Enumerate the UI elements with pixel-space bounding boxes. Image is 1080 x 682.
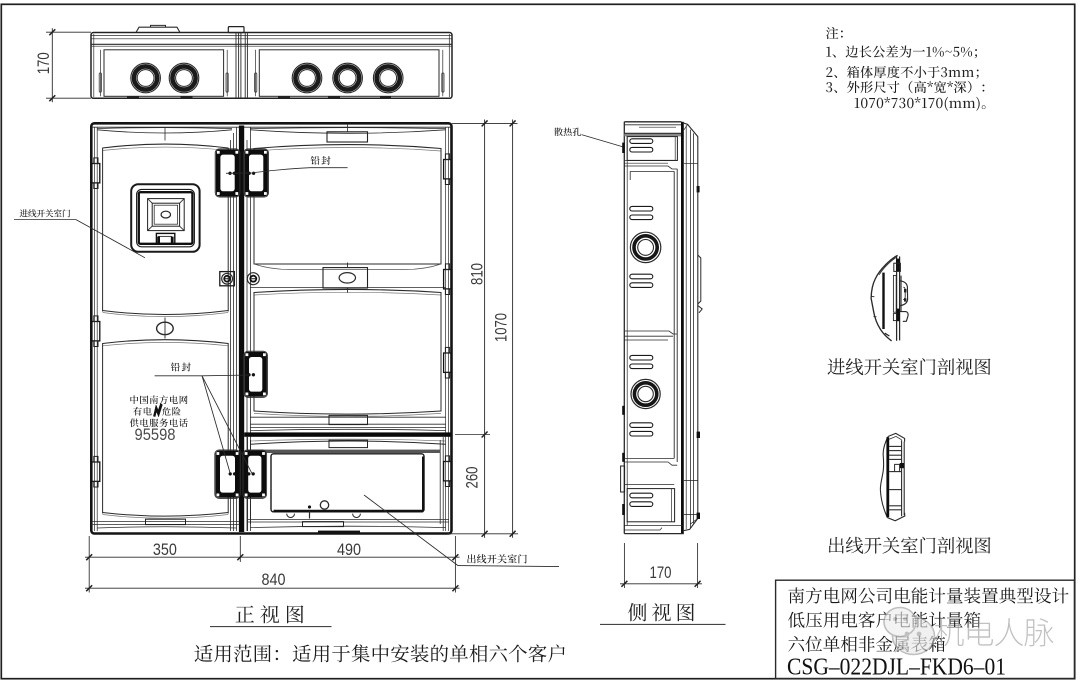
svg-text:260: 260 bbox=[464, 467, 482, 489]
svg-text:1070: 1070 bbox=[493, 313, 511, 342]
svg-text:840: 840 bbox=[262, 571, 286, 589]
svg-text:490: 490 bbox=[337, 541, 361, 559]
svg-text:170: 170 bbox=[650, 564, 672, 582]
svg-text:CSG–022DJL–FKD6–01: CSG–022DJL–FKD6–01 bbox=[787, 653, 1006, 680]
svg-text:810: 810 bbox=[469, 263, 487, 285]
svg-text:170: 170 bbox=[35, 52, 53, 74]
svg-text:350: 350 bbox=[153, 541, 177, 559]
svg-text:95598: 95598 bbox=[135, 426, 176, 444]
